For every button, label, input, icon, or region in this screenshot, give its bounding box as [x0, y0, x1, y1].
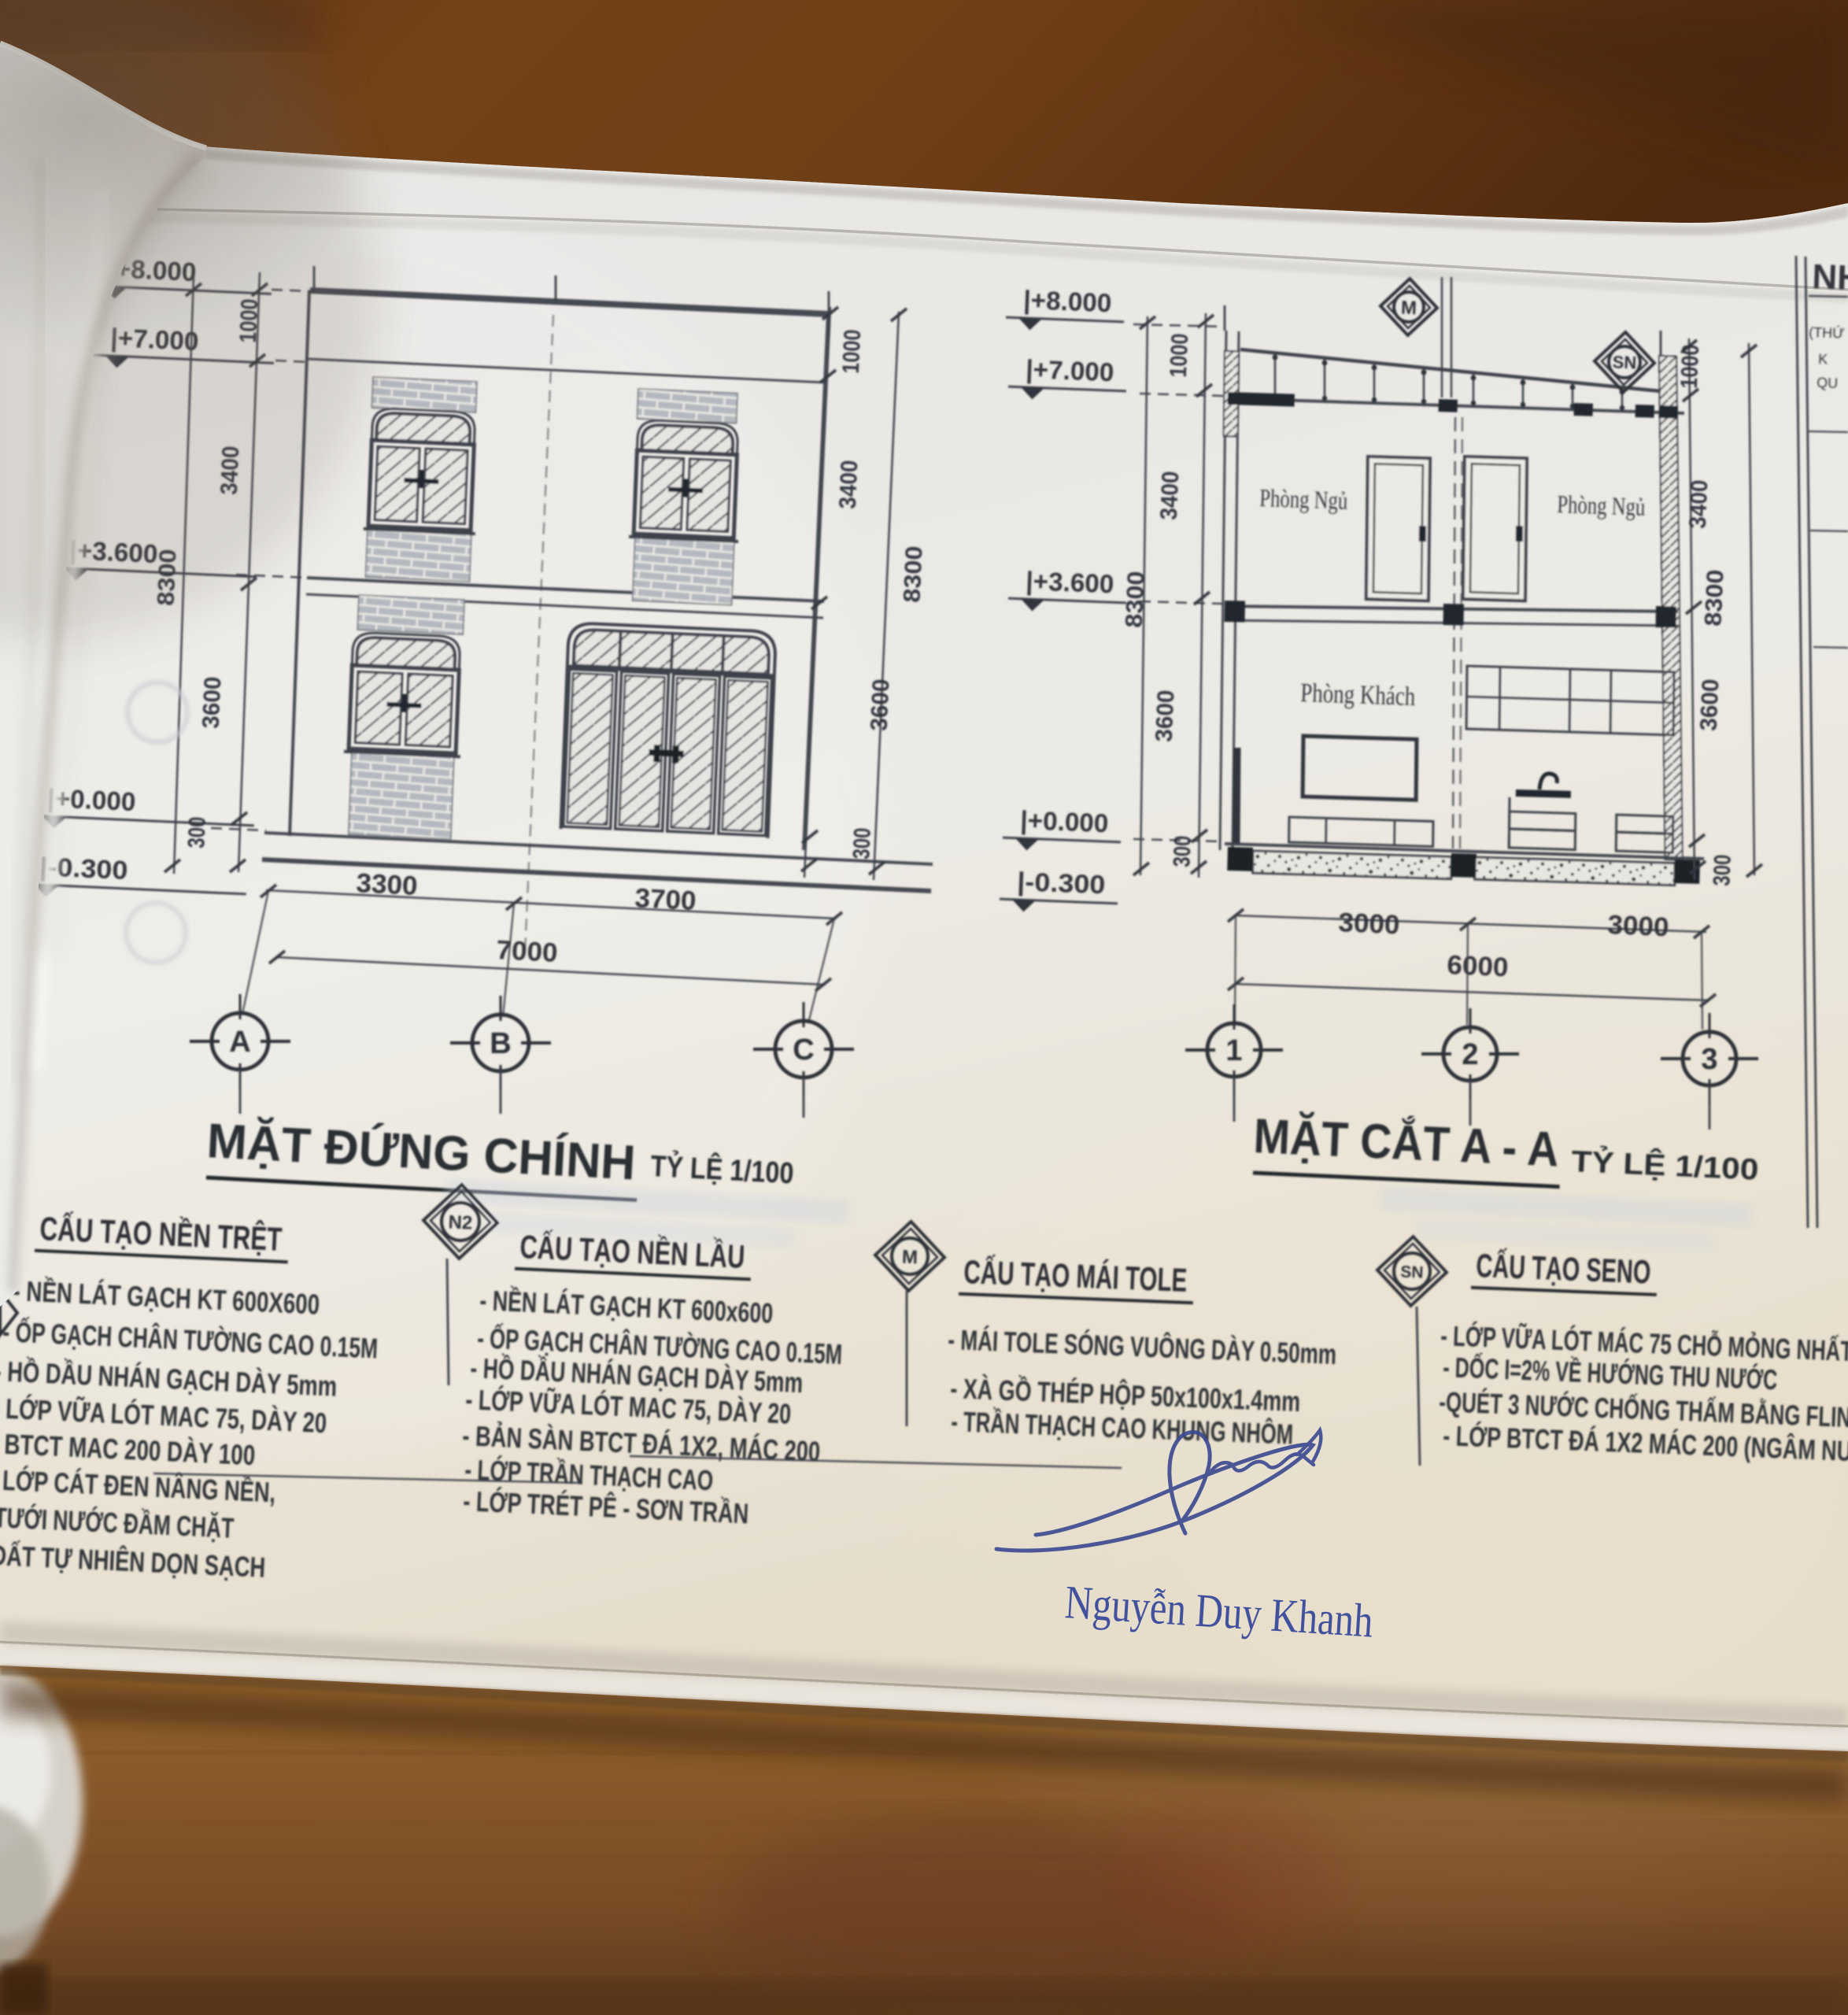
svg-text:NH: NH	[1812, 257, 1848, 298]
svg-text:3600: 3600	[1151, 690, 1180, 742]
svg-text:8300: 8300	[1700, 569, 1728, 627]
svg-text:3300: 3300	[356, 868, 419, 901]
svg-text:K: K	[1818, 351, 1828, 367]
svg-text:3400: 3400	[1156, 471, 1185, 520]
svg-text:(THỨ: (THỨ	[1809, 324, 1845, 342]
svg-text:|+0.000: |+0.000	[1020, 805, 1109, 837]
svg-text:|+8.000: |+8.000	[1023, 285, 1112, 317]
svg-text:C: C	[793, 1033, 814, 1067]
svg-text:Phòng Khách: Phòng Khách	[1300, 678, 1416, 712]
svg-text:3000: 3000	[1607, 910, 1670, 942]
svg-text:300: 300	[183, 816, 211, 849]
svg-text:300: 300	[1709, 854, 1736, 886]
svg-text:7000: 7000	[496, 935, 559, 968]
svg-text:3600: 3600	[867, 678, 895, 731]
svg-text:SN: SN	[1400, 1263, 1424, 1281]
svg-text:1000: 1000	[838, 329, 866, 374]
svg-text:8300: 8300	[1121, 571, 1149, 628]
svg-text:QU: QU	[1817, 375, 1839, 391]
svg-text:300: 300	[848, 827, 876, 860]
svg-text:M: M	[901, 1247, 918, 1269]
svg-text:Phòng Ngủ: Phòng Ngủ	[1259, 483, 1348, 515]
svg-text:300: 300	[1169, 835, 1196, 867]
svg-text:3600: 3600	[198, 676, 227, 729]
svg-text:3700: 3700	[634, 883, 697, 916]
svg-text:Phòng Ngủ: Phòng Ngủ	[1557, 490, 1646, 521]
svg-text:3600: 3600	[1696, 678, 1724, 731]
svg-text:SN: SN	[1612, 352, 1636, 372]
svg-text:B: B	[490, 1027, 511, 1060]
svg-text:M: M	[1400, 298, 1417, 320]
svg-text:3: 3	[1701, 1043, 1717, 1076]
svg-text:|+7.000: |+7.000	[1026, 354, 1114, 386]
svg-text:A: A	[229, 1026, 250, 1059]
svg-text:1000: 1000	[1166, 333, 1193, 378]
svg-text:3000: 3000	[1338, 908, 1401, 940]
svg-text:1000: 1000	[1676, 344, 1704, 389]
svg-text:3400: 3400	[835, 460, 863, 509]
svg-text:|+3.600: |+3.600	[1026, 566, 1114, 598]
svg-text:CẤU TẠO SENO: CẤU TẠO SENO	[1476, 1247, 1652, 1290]
svg-text:6000: 6000	[1447, 950, 1510, 982]
svg-text:2: 2	[1462, 1038, 1478, 1071]
svg-text:8300: 8300	[899, 545, 927, 603]
svg-text:3400: 3400	[1685, 479, 1713, 529]
svg-text:N2: N2	[448, 1211, 473, 1233]
svg-text:1: 1	[1225, 1034, 1242, 1067]
svg-text:|-0.300: |-0.300	[1017, 867, 1106, 899]
